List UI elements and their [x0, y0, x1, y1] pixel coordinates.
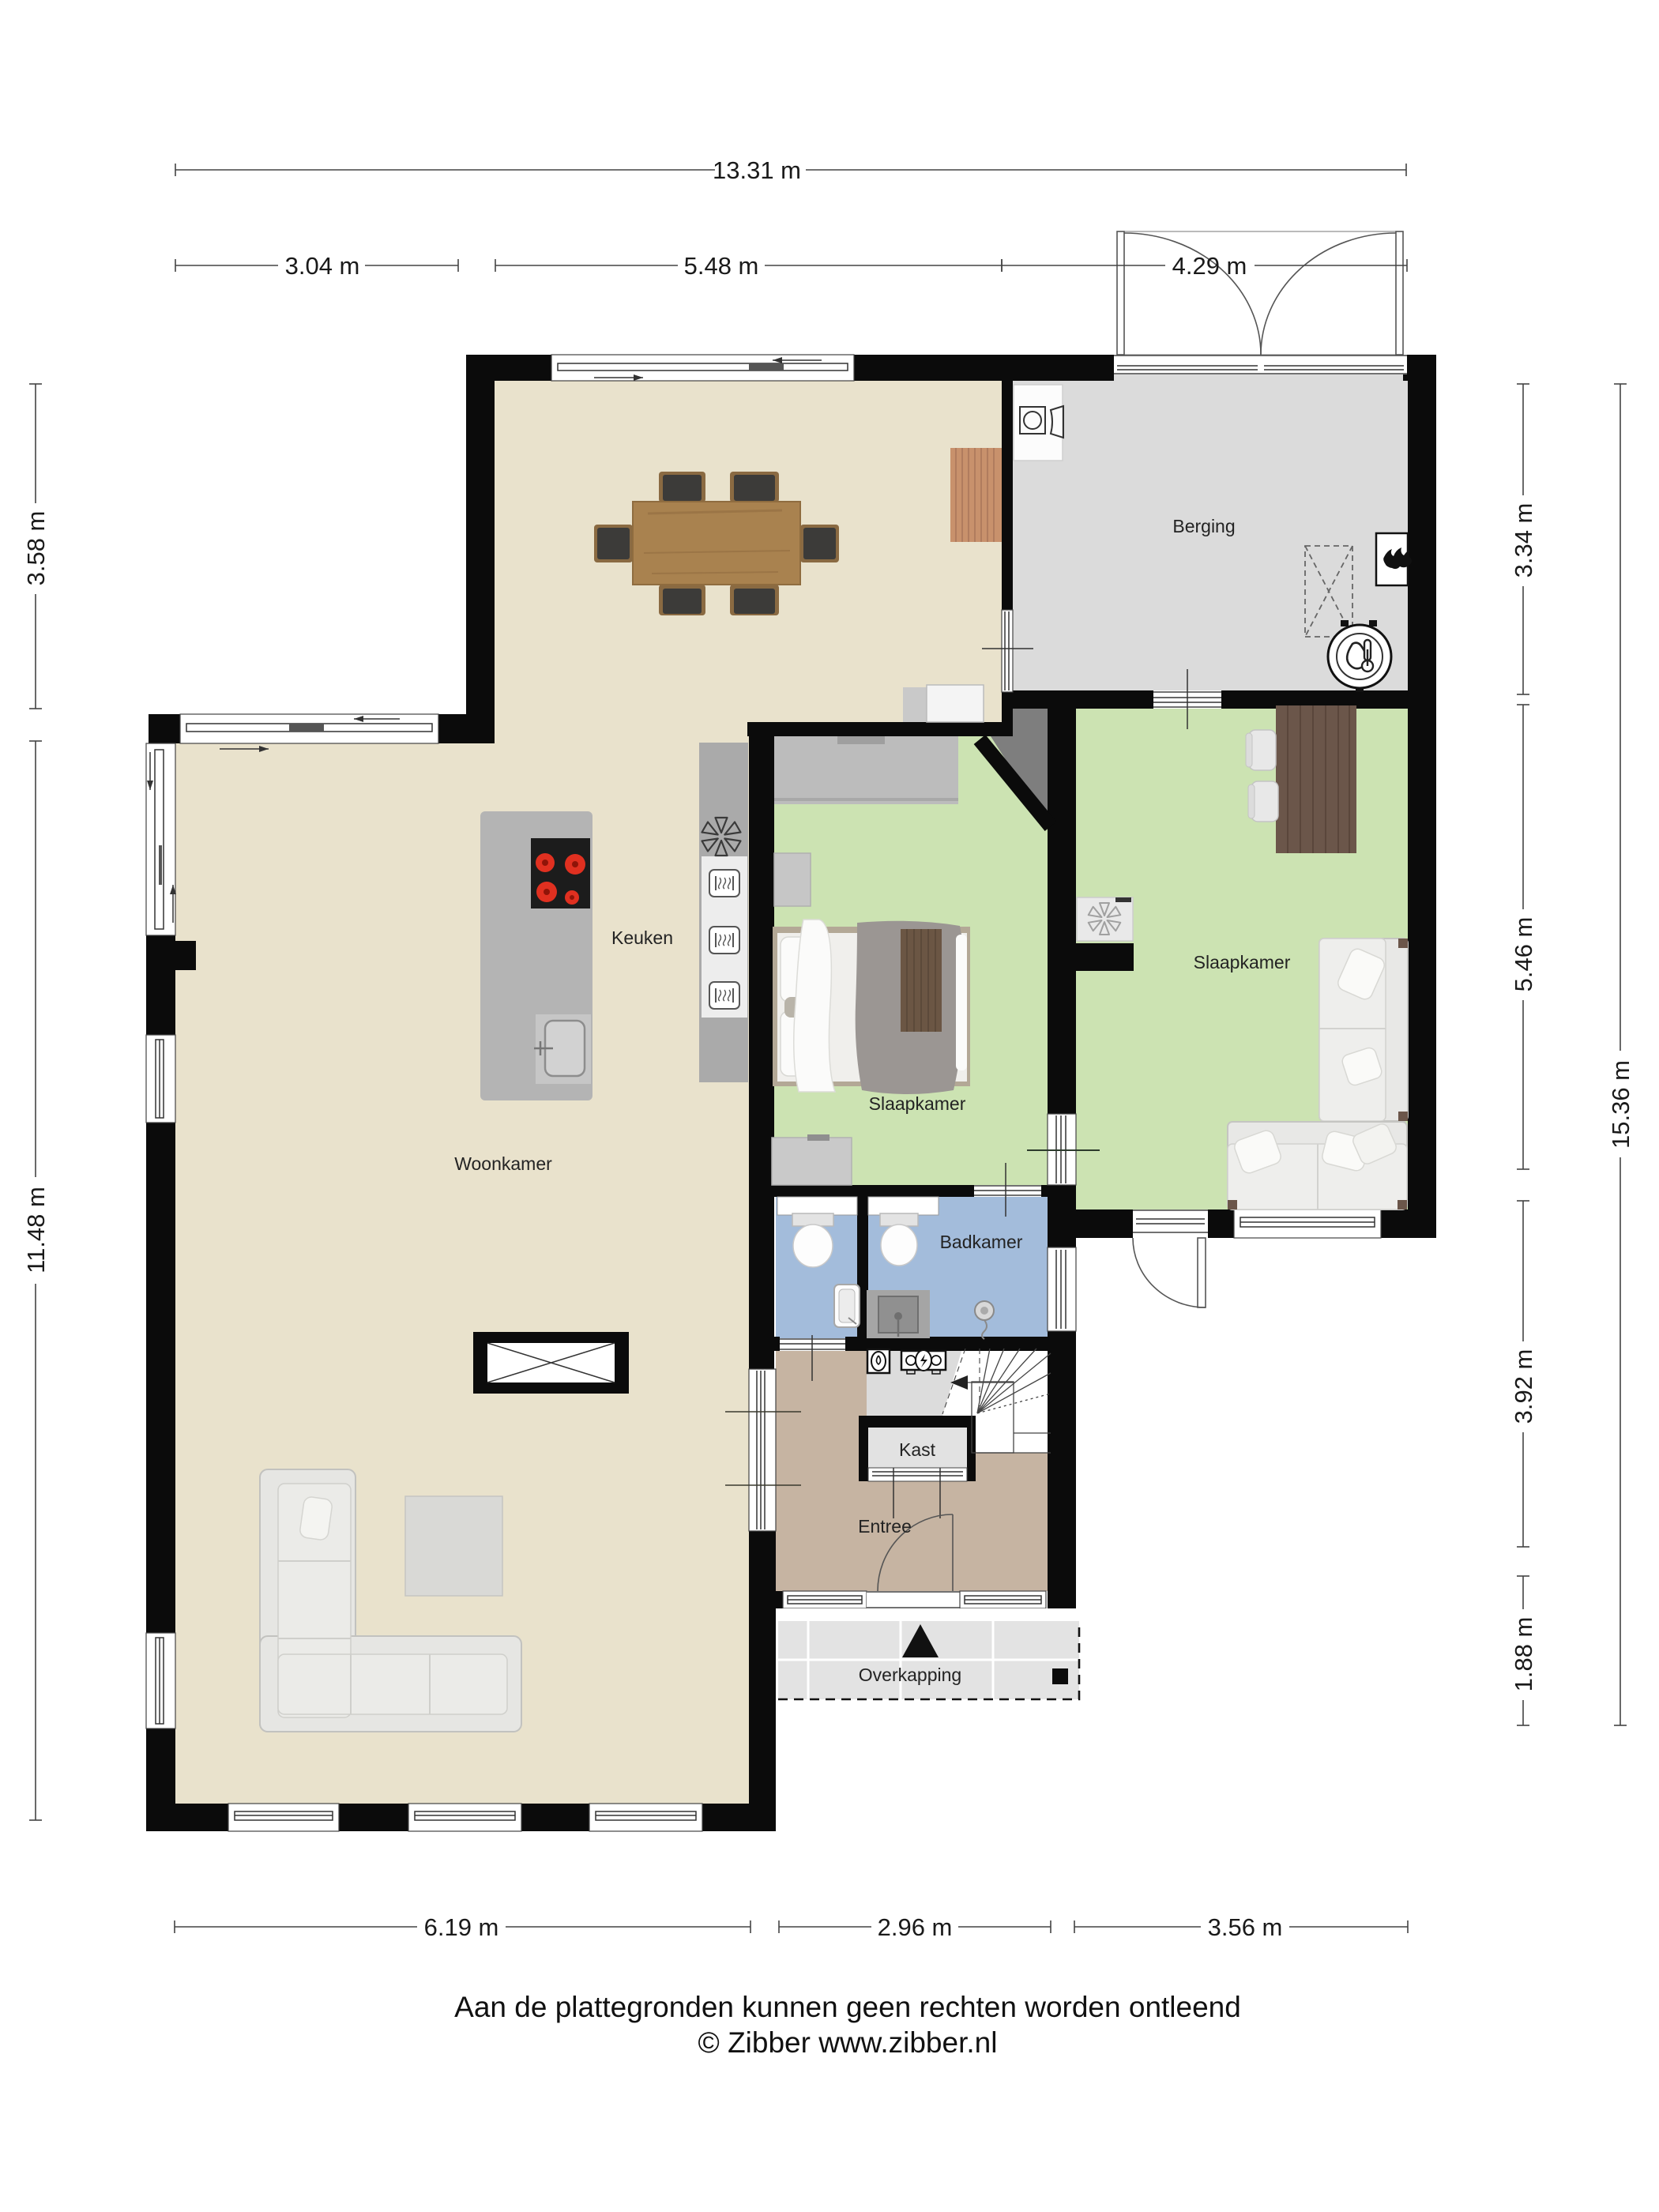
svg-text:Berging: Berging	[1172, 516, 1235, 536]
svg-text:Woonkamer: Woonkamer	[454, 1153, 552, 1174]
svg-text:Keuken: Keuken	[611, 927, 673, 948]
svg-text:Badkamer: Badkamer	[940, 1232, 1023, 1252]
svg-text:4.29 m: 4.29 m	[1172, 252, 1247, 280]
svg-text:5.46 m: 5.46 m	[1510, 917, 1537, 992]
svg-text:13.31 m: 13.31 m	[713, 156, 801, 184]
svg-text:3.58 m: 3.58 m	[22, 511, 50, 586]
svg-text:3.92 m: 3.92 m	[1510, 1349, 1537, 1424]
svg-text:5.48 m: 5.48 m	[684, 252, 759, 280]
svg-text:3.34 m: 3.34 m	[1510, 503, 1537, 578]
svg-text:2.96 m: 2.96 m	[878, 1913, 953, 1941]
svg-text:Slaapkamer: Slaapkamer	[869, 1093, 966, 1114]
svg-text:Entree: Entree	[858, 1516, 912, 1537]
svg-text:15.36 m: 15.36 m	[1607, 1060, 1635, 1149]
svg-text:Overkapping: Overkapping	[859, 1665, 961, 1685]
svg-text:Slaapkamer: Slaapkamer	[1194, 952, 1291, 972]
svg-text:© Zibber www.zibber.nl: © Zibber www.zibber.nl	[698, 2026, 998, 2059]
svg-text:Kast: Kast	[899, 1439, 936, 1460]
svg-text:3.04 m: 3.04 m	[285, 252, 360, 280]
svg-text:6.19 m: 6.19 m	[424, 1913, 499, 1941]
svg-text:1.88 m: 1.88 m	[1510, 1617, 1537, 1692]
svg-text:3.56 m: 3.56 m	[1208, 1913, 1283, 1941]
svg-text:11.48 m: 11.48 m	[22, 1187, 50, 1273]
svg-text:Aan de plattegronden kunnen ge: Aan de plattegronden kunnen geen rechten…	[454, 1991, 1241, 2023]
